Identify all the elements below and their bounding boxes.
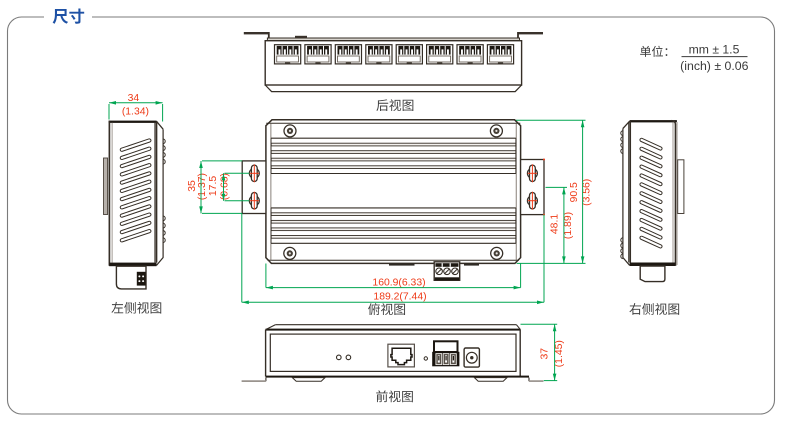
svg-text:(1.45): (1.45) [554,340,565,367]
svg-text:17.5: 17.5 [208,176,219,196]
svg-text:48.1: 48.1 [550,214,561,234]
svg-text:mm ± 1.5: mm ± 1.5 [689,43,740,57]
svg-text:(1.34): (1.34) [122,107,149,118]
svg-text:189.2(7.44): 189.2(7.44) [373,292,426,303]
svg-text:(1.89): (1.89) [563,212,574,239]
svg-text:(inch) ± 0.06: (inch) ± 0.06 [680,59,748,73]
svg-text:90.5: 90.5 [569,182,580,202]
svg-text:(0.68): (0.68) [220,173,231,200]
svg-text:37: 37 [540,348,551,360]
svg-text:(1.37): (1.37) [197,173,208,200]
svg-text:160.9(6.33): 160.9(6.33) [372,278,425,289]
